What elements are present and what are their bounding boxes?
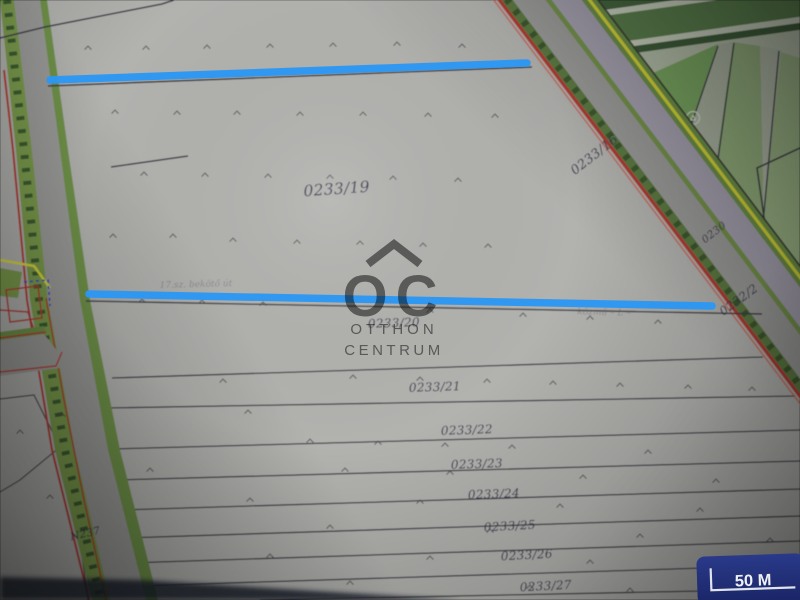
screenshot-root: 0233/190233/1602300232/20233/200233/2102… bbox=[0, 0, 800, 600]
scale-bar-label: 50 M bbox=[734, 571, 771, 590]
watermark-line2: CENTRUM bbox=[344, 342, 444, 359]
cadastral-map: 0233/190233/1602300232/20233/200233/2102… bbox=[0, 0, 800, 600]
scale-bar: 50 M bbox=[696, 553, 800, 600]
watermark-line1: OTTHON bbox=[350, 321, 437, 338]
watermark-initials: OC bbox=[343, 264, 446, 329]
